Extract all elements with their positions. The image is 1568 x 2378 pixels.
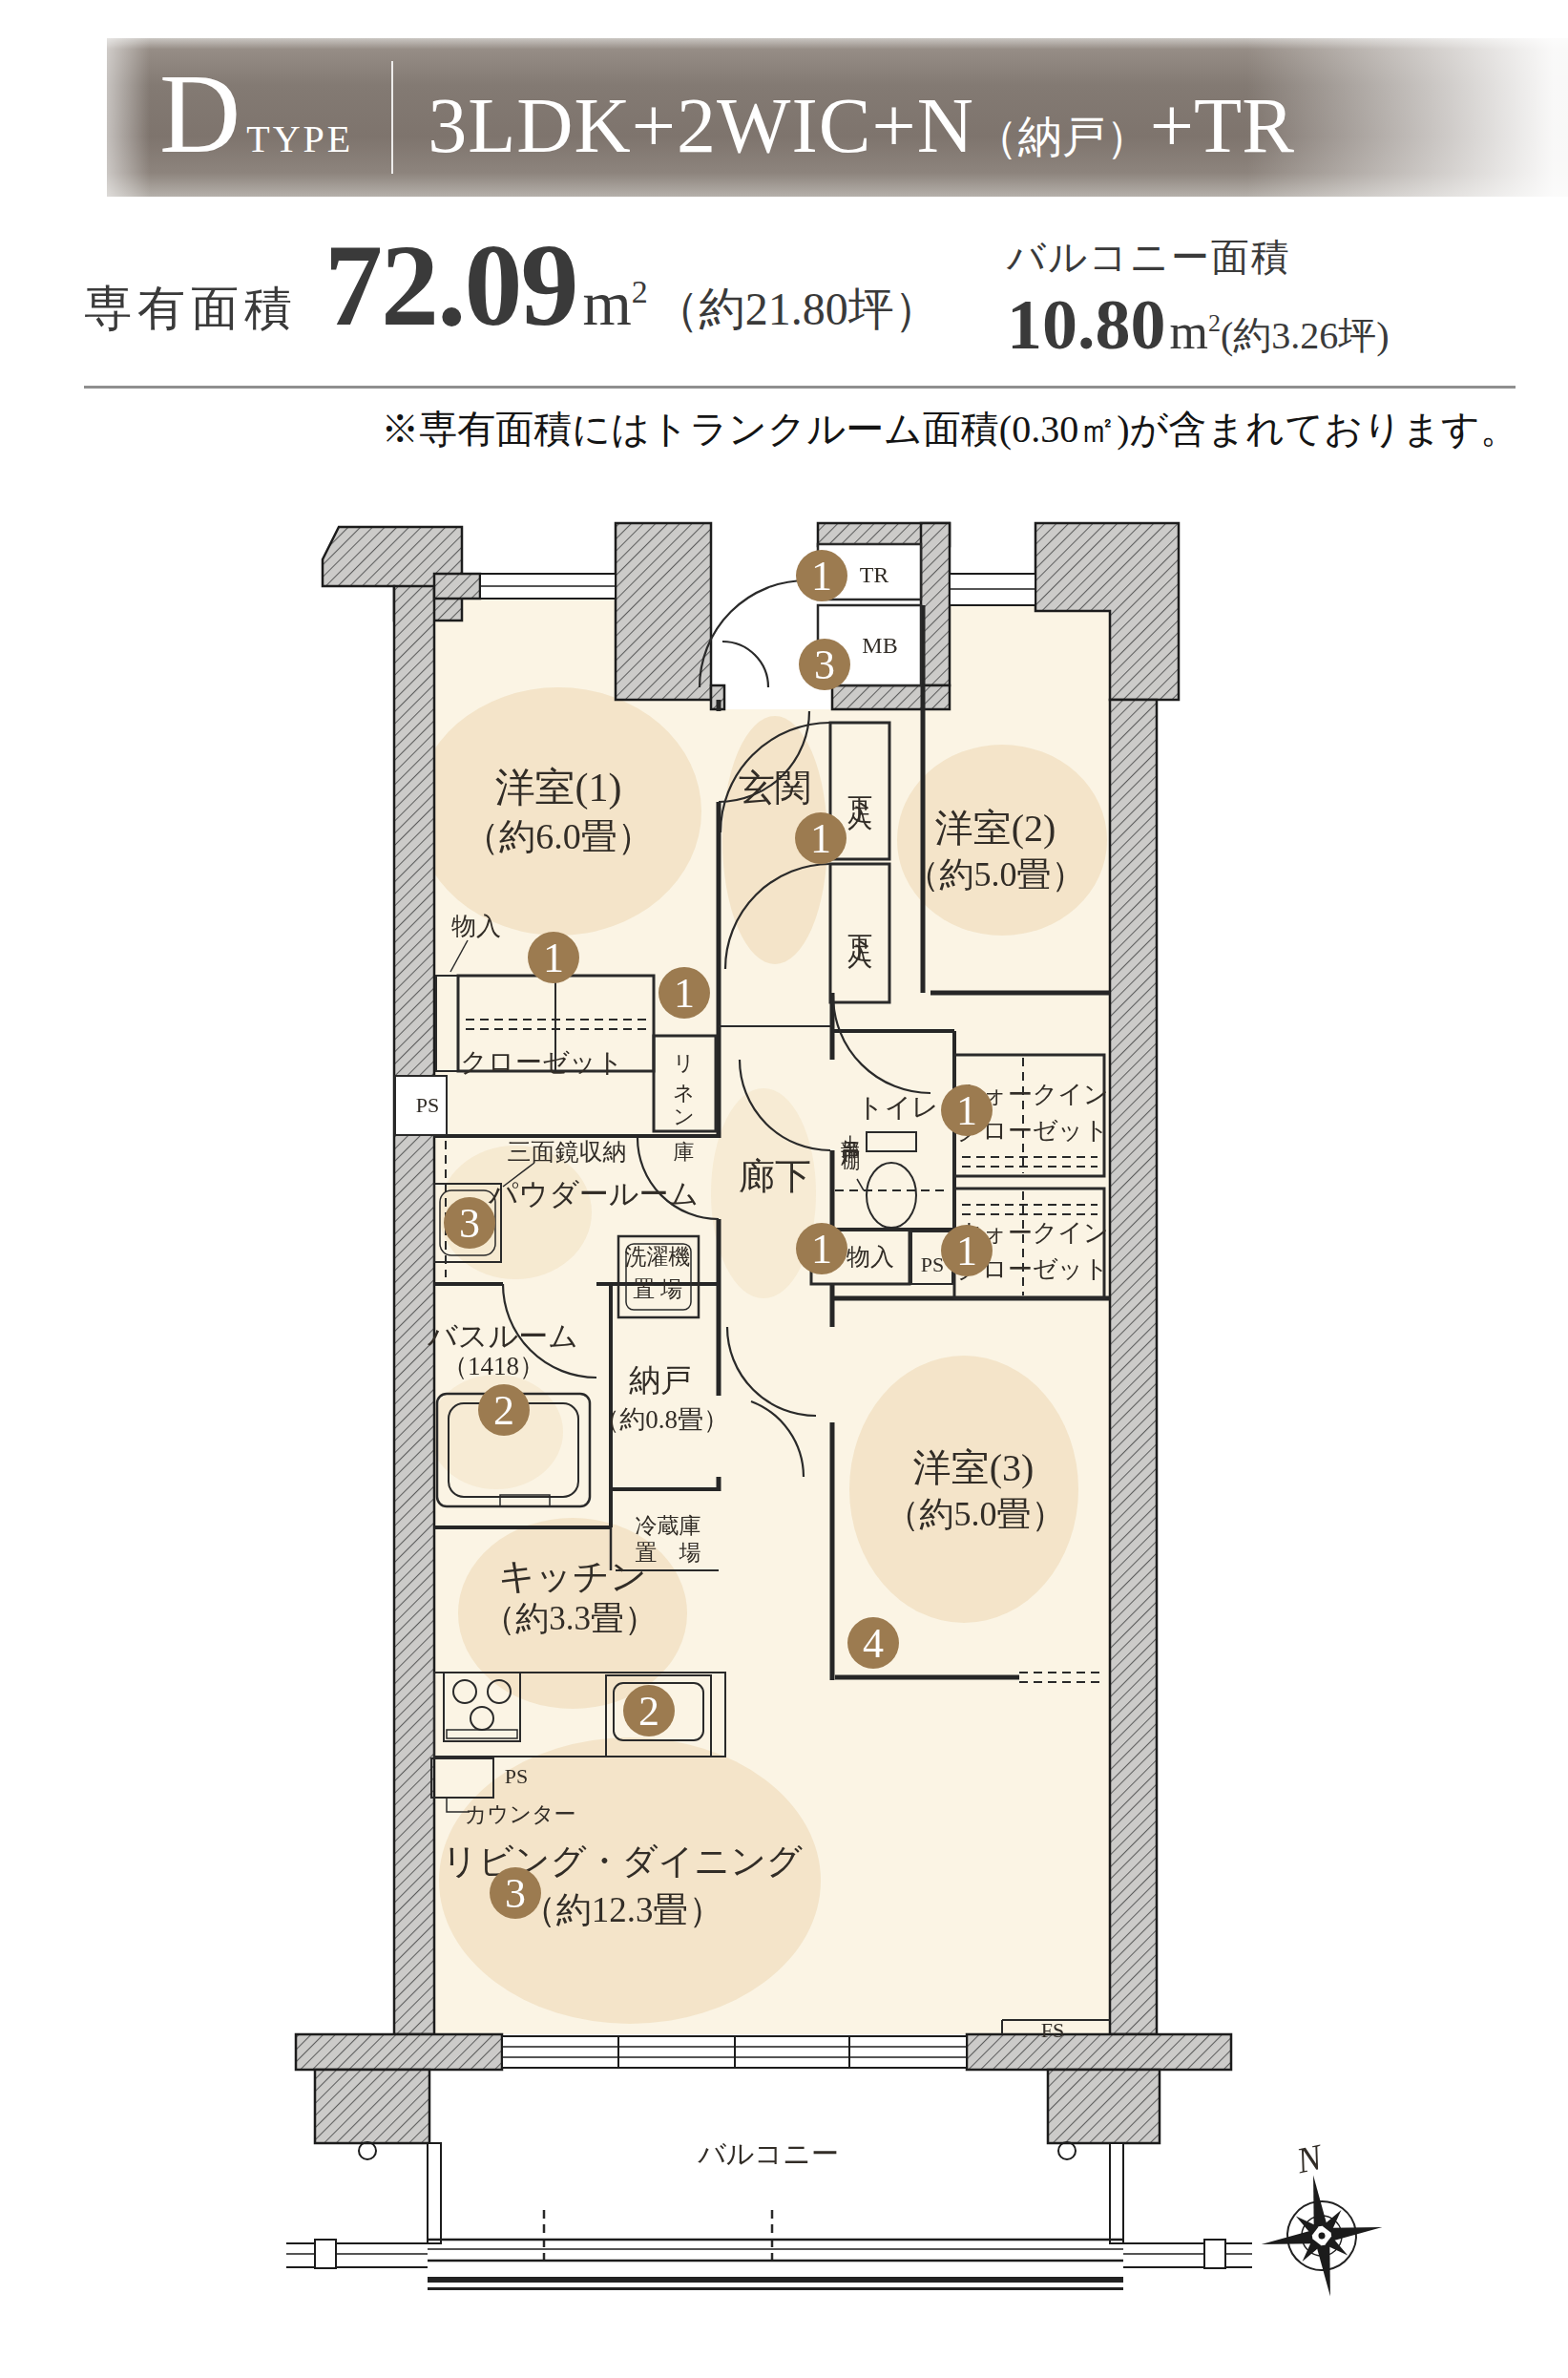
- compass-icon: [1253, 2167, 1391, 2305]
- floorplan-drawing: [0, 0, 1568, 2378]
- balcony-structure: [286, 2142, 1252, 2290]
- entry-recess: [711, 523, 818, 685]
- floorplan-page: D TYPE 3LDK+2WIC+N （納戸） +TR 専有面積 72.09 m…: [0, 0, 1568, 2378]
